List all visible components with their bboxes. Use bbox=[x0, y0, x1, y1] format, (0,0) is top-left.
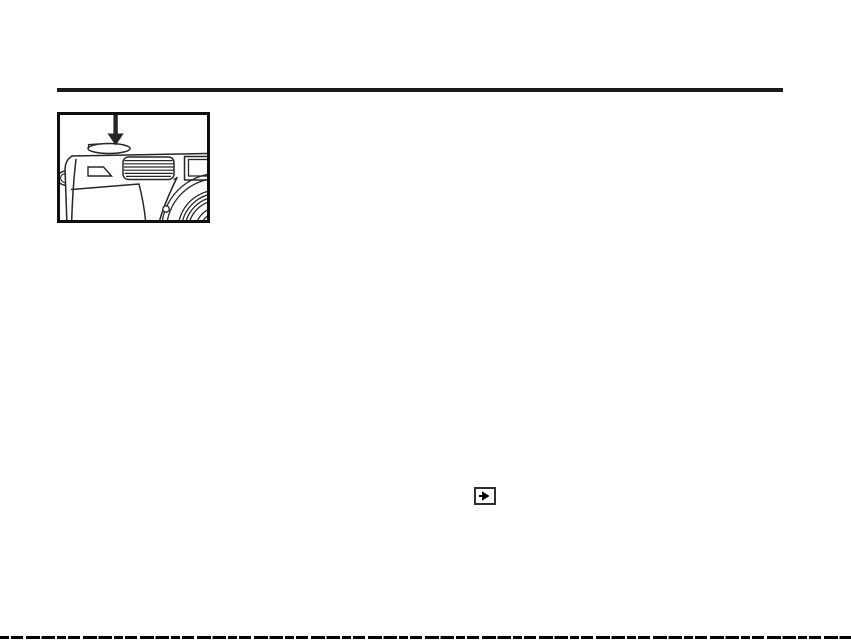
play-triangle-icon bbox=[476, 489, 494, 503]
self-timer-window bbox=[88, 167, 112, 176]
viewfinder-window bbox=[185, 157, 208, 181]
camera-illustration bbox=[60, 115, 207, 220]
screw-dot bbox=[163, 206, 169, 212]
down-arrow-icon bbox=[108, 115, 124, 146]
playback-icon bbox=[474, 487, 496, 505]
flash-grille bbox=[123, 157, 174, 180]
shutter-button bbox=[88, 144, 130, 154]
header-rule bbox=[57, 88, 783, 92]
manual-page bbox=[0, 0, 851, 641]
page-bottom-torn-edge bbox=[0, 636, 851, 639]
camera-illustration-frame bbox=[57, 112, 210, 223]
